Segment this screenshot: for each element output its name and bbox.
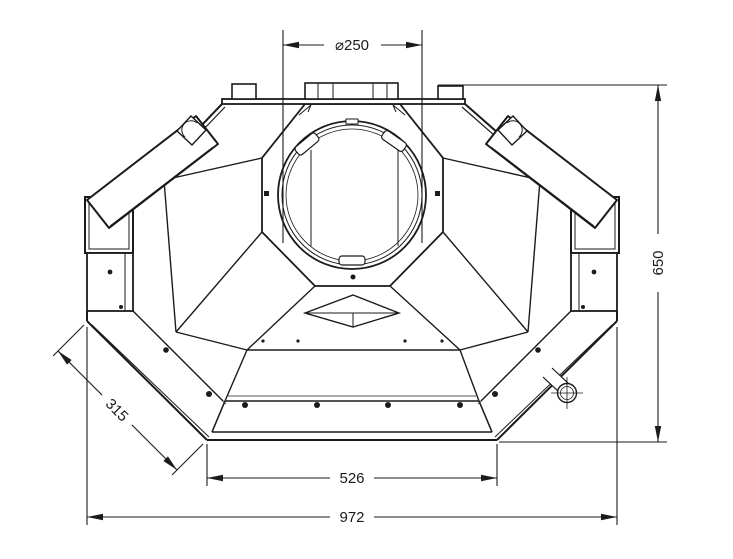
dim-label-flue-diameter: ⌀250 [335, 37, 369, 54]
dimension-overall-height: 650 [438, 85, 667, 442]
hood-body [85, 83, 619, 440]
dim-label-base-inner-width: 526 [339, 470, 364, 487]
dimension-overall-width: 972 [87, 327, 617, 526]
dimension-base-inner-width: 526 [207, 444, 497, 487]
dimension-corner-edge: 315 [53, 325, 203, 475]
plate-bolt-right [435, 191, 440, 196]
dim-label-overall-width: 972 [339, 509, 364, 526]
plate-bolt-bottom [351, 275, 356, 280]
technical-drawing: ⌀250 650 315 526 [0, 0, 733, 559]
top-tab-group [305, 83, 398, 99]
base-skirt [87, 321, 617, 440]
top-tab [232, 84, 256, 99]
rivets [108, 270, 597, 408]
flue-collar-plate [262, 104, 443, 286]
dim-label-overall-height: 650 [650, 250, 667, 275]
collar-clip-bottom [339, 256, 365, 265]
plate-bolt-left [264, 191, 269, 196]
top-tab [438, 86, 463, 99]
drawing-canvas: ⌀250 650 315 526 [0, 0, 733, 559]
collar-seam [346, 119, 358, 124]
deflector [305, 295, 399, 327]
